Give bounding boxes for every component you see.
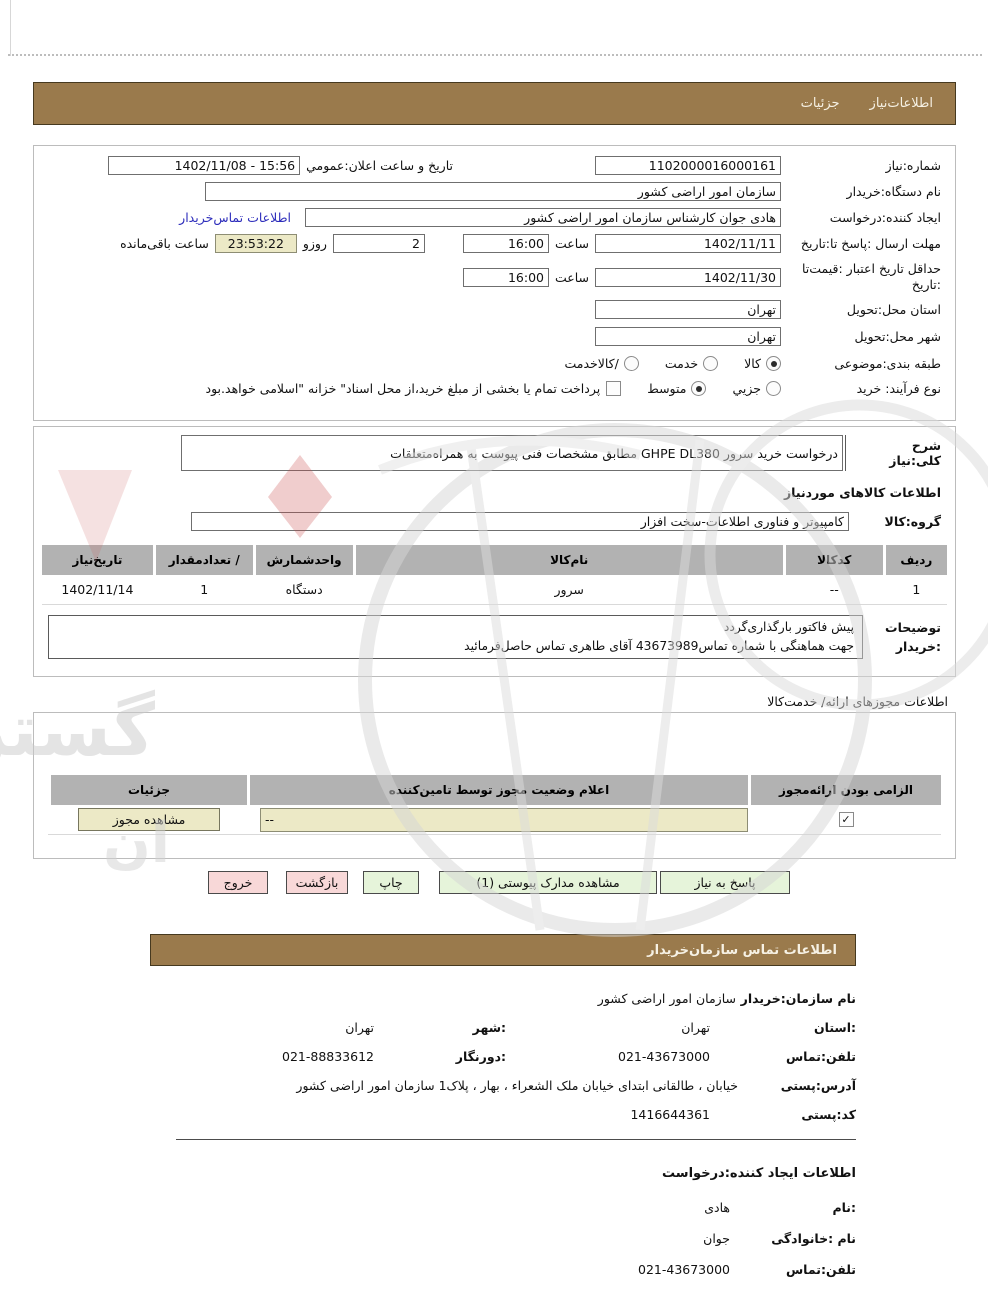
postal-code-value: 1416644361 — [506, 1107, 746, 1122]
classification-option-goods[interactable]: کالا — [744, 356, 781, 371]
city-value: تهران — [226, 1020, 396, 1035]
fax-value: 021-88833612 — [226, 1049, 396, 1064]
col-row-number: ردیف — [886, 545, 947, 575]
postal-address-value: خیابان ، طالقانی ابتدای خیابان ملک الشعر… — [296, 1078, 746, 1093]
col-goods-name: نام‌کالا — [356, 545, 783, 575]
postal-address-label: آدرس:پستی — [746, 1078, 856, 1093]
classification-option-goods-service[interactable]: /کالاخدمت — [564, 356, 638, 371]
price-validity-label: حداقل تاریخ اعتبار :قیمت‌تا :تاریخ — [781, 261, 941, 293]
goods-group-label: گروه:کالا — [849, 514, 941, 529]
deadline-days-label: روزو — [303, 236, 327, 251]
license-table-row: ✓ -- مشاهده مجوز — [48, 805, 941, 835]
buyer-contact-section: نام سازمان:خریدار سازمان امور اراضی کشور… — [150, 975, 856, 1278]
exit-button[interactable]: خروج — [208, 871, 268, 894]
deadline-days-field[interactable]: 2 — [333, 234, 425, 253]
process-option-minor[interactable]: جزیي — [732, 381, 781, 396]
buyer-contact-link[interactable]: اطلاعات تماس‌خریدار — [179, 210, 291, 225]
col-license-required: الزامی بودن ارائه‌مجوز — [751, 775, 941, 805]
process-type-label: نوع فرآیند: خرید — [781, 381, 941, 396]
buyer-org-field[interactable]: سازمان امور اراضی کشور — [205, 182, 781, 201]
contact-phone-label: تلفن:تماس — [746, 1049, 856, 1064]
goods-table-header: ردیف کدکالا نام‌کالا واحدشمارش / تعدادمق… — [42, 545, 947, 575]
request-creator-section-title: اطلاعات ایجاد کننده:درخواست — [662, 1166, 856, 1181]
org-name-value: سازمان امور اراضی کشور — [598, 991, 736, 1006]
price-validity-time-label: ساعت — [555, 270, 589, 285]
treasury-payment-option[interactable]: پرداخت تمام یا بخشی از مبلغ خرید،از محل … — [206, 381, 622, 396]
countdown-label: ساعت باقی‌مانده — [120, 236, 209, 251]
buyer-notes-box: پیش فاکتور بارگذاری‌گردد جهت هماهنگی با … — [48, 615, 863, 659]
postal-code-label: کد:پستی — [746, 1107, 856, 1122]
province-value: تهران — [506, 1020, 746, 1035]
buyer-notes-label: توضیحات :خریدار — [863, 615, 941, 656]
buyer-org-label: نام دستگاه:خریدار — [781, 184, 941, 199]
license-status-field[interactable]: -- — [260, 808, 748, 832]
goods-section-title: اطلاعات کالاهای موردنیاز — [784, 485, 941, 500]
deadline-label: مهلت ارسال :پاسخ تا:تاریخ — [781, 236, 941, 251]
fax-label: :دورنگار — [396, 1049, 506, 1064]
goods-panel: شرح کلی:نیاز درخواست خرید سرور GHPE DL38… — [33, 426, 956, 677]
process-option-medium[interactable]: متوسط — [647, 381, 706, 396]
license-table: الزامی بودن ارائه‌مجوز اعلام وضعیت مجوز … — [48, 775, 941, 835]
goods-table: ردیف کدکالا نام‌کالا واحدشمارش / تعدادمق… — [42, 545, 947, 605]
need-number-label: شماره:نیاز — [781, 158, 941, 173]
creator-first-name-label: :نام — [746, 1200, 856, 1215]
col-license-details: جزئیات — [51, 775, 247, 805]
need-desc-field[interactable]: درخواست خرید سرور GHPE DL380 مطابق مشخصا… — [181, 435, 843, 471]
need-desc-label: شرح کلی:نیاز — [845, 435, 941, 471]
respond-to-need-button[interactable]: پاسخ به نیاز — [660, 871, 790, 894]
radio-medium-icon[interactable] — [691, 381, 706, 396]
radio-minor-icon[interactable] — [766, 381, 781, 396]
action-buttons-row: پاسخ به نیاز مشاهده مدارک پیوستی (1) چاپ… — [0, 871, 988, 894]
license-required-checkbox[interactable]: ✓ — [839, 812, 854, 827]
need-number-field[interactable]: 1102000016000161 — [595, 156, 781, 175]
classification-label: طبقه بندی:موضوعی — [781, 356, 941, 371]
col-goods-code: کدکالا — [786, 545, 883, 575]
announce-datetime-label: تاریخ و ساعت اعلان:عمومي — [306, 158, 453, 173]
radio-goods-icon[interactable] — [766, 356, 781, 371]
delivery-province-field[interactable]: تهران — [595, 300, 781, 319]
deadline-date-field[interactable]: 1402/11/11 — [595, 234, 781, 253]
tab-need-info[interactable]: اطلاعات‌نیاز — [870, 96, 933, 111]
deadline-time-field[interactable]: 16:00 — [463, 234, 549, 253]
classification-option-service[interactable]: خدمت — [665, 356, 718, 371]
request-creator-field[interactable]: هادی جوان کارشناس سازمان امور اراضی کشور — [305, 208, 781, 227]
col-unit: واحدشمارش — [256, 545, 353, 575]
delivery-city-label: شهر محل:تحویل — [781, 329, 941, 344]
creator-phone-label: تلفن:تماس — [746, 1262, 856, 1277]
section-divider — [176, 1139, 856, 1140]
goods-table-row[interactable]: 1 -- سرور دستگاه 1 1402/11/14 — [42, 575, 947, 605]
deadline-time-label: ساعت — [555, 236, 589, 251]
top-tab-bar: اطلاعات‌نیاز جزئیات — [33, 82, 956, 125]
back-button[interactable]: بازگشت — [286, 871, 348, 894]
price-validity-time-field[interactable]: 16:00 — [463, 268, 549, 287]
license-section-title: اطلاعات مجوزهای ارائه/ خدمت‌کالا — [767, 694, 948, 709]
city-label: :شهر — [396, 1020, 506, 1035]
request-creator-label: ایجاد کننده:درخواست — [781, 210, 941, 225]
announce-datetime-field[interactable]: 1402/11/08 - 15:56 — [108, 156, 300, 175]
need-summary-panel: شماره:نیاز 1102000016000161 تاریخ و ساعت… — [33, 145, 956, 421]
creator-first-name-value: هادی — [546, 1200, 746, 1215]
radio-service-icon[interactable] — [703, 356, 718, 371]
delivery-city-field[interactable]: تهران — [595, 327, 781, 346]
page-edge-line — [10, 0, 11, 56]
buyer-contact-header: اطلاعات تماس سازمان‌خریدار — [150, 934, 856, 966]
creator-last-name-value: جوان — [546, 1231, 746, 1246]
col-license-status: اعلام وضعیت مجوز توسط تامین‌کننده — [250, 775, 748, 805]
view-attached-docs-button[interactable]: مشاهده مدارک پیوستی (1) — [439, 871, 657, 894]
creator-last-name-label: نام :خانوادگی — [746, 1231, 856, 1246]
col-need-date: تاریخ‌نیاز — [42, 545, 153, 575]
view-license-button[interactable]: مشاهده مجوز — [78, 808, 220, 831]
license-panel: الزامی بودن ارائه‌مجوز اعلام وضعیت مجوز … — [33, 712, 956, 859]
radio-goods-service-icon[interactable] — [624, 356, 639, 371]
col-quantity: / تعدادمقدار — [156, 545, 253, 575]
delivery-province-label: استان محل:تحویل — [781, 302, 941, 317]
org-name-label: نام سازمان:خریدار — [736, 991, 856, 1006]
contact-phone-value: 021-43673000 — [506, 1049, 746, 1064]
creator-phone-value: 021-43673000 — [546, 1262, 746, 1277]
tab-details[interactable]: جزئیات — [801, 96, 840, 111]
goods-group-field[interactable]: کامپیوتر و فناوری اطلاعات-سخت افزار — [191, 512, 849, 531]
top-dotted-divider — [8, 54, 982, 56]
treasury-checkbox-icon[interactable] — [606, 381, 621, 396]
price-validity-date-field[interactable]: 1402/11/30 — [595, 268, 781, 287]
print-button[interactable]: چاپ — [363, 871, 419, 894]
province-label: :استان — [746, 1020, 856, 1035]
countdown-timer: 23:53:22 — [215, 234, 297, 253]
